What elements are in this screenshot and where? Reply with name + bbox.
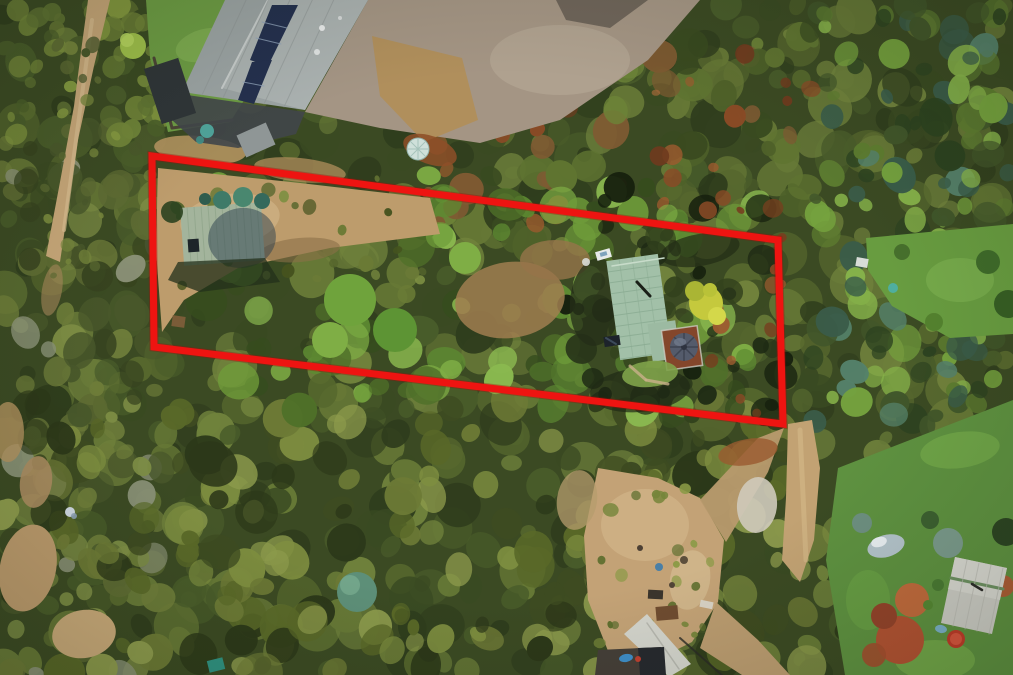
trampoline-red-inner (950, 633, 962, 645)
teal-tree-hl (340, 575, 360, 595)
shed-skylight (188, 239, 200, 253)
water-tank-pleats (408, 139, 428, 159)
lime-bush-topleft-hl (120, 33, 134, 47)
junk-bit-2 (680, 556, 688, 564)
teal-dot-right (888, 283, 898, 293)
junk-blue-barrel (655, 563, 663, 571)
white-object-2 (582, 258, 590, 266)
blue-spruce-2 (852, 513, 872, 533)
autumn-tree-2 (895, 583, 929, 617)
bottom-shed-dark (638, 647, 666, 675)
lawn-tree-3 (925, 313, 943, 331)
deck-umbrella-sheen (674, 338, 686, 346)
teal-umbrella-small (196, 136, 204, 144)
junk-dark (648, 590, 663, 600)
lawn-tree-4 (894, 244, 910, 260)
junk-shed-brown (655, 605, 678, 621)
lawn-tree-1 (976, 250, 1000, 274)
yellow-bush-3 (708, 307, 726, 325)
roof-vent-3 (338, 16, 342, 20)
dark-tree-right-2 (921, 511, 939, 529)
aerial-photo-canvas (0, 0, 1013, 675)
gravel-highlight (490, 25, 630, 95)
shed-bush-2 (233, 187, 253, 207)
roof-vent-2 (314, 49, 320, 55)
white-tarp-shade (71, 513, 77, 519)
autumn-tree-3 (871, 603, 897, 629)
red-item (635, 656, 641, 662)
roof-vent-1 (319, 25, 325, 31)
shed-bush-1 (213, 191, 231, 209)
yellow-bush-4 (703, 283, 717, 297)
junk-bit-1 (669, 582, 675, 588)
bright-canopy-4 (449, 242, 481, 274)
bright-canopy-2 (373, 308, 417, 352)
bright-canopy-1 (324, 274, 376, 326)
shed-bush-3 (254, 193, 270, 209)
cottage-bush-1 (932, 579, 944, 591)
junk-bit-3 (637, 545, 643, 551)
aerial-photo (0, 0, 1013, 675)
teal-umbrella (200, 124, 214, 138)
small-box (171, 315, 185, 328)
autumn-tree-4 (862, 643, 886, 667)
bright-canopy-3 (312, 322, 348, 358)
cottage-bush-2 (923, 600, 933, 610)
dark-tree-left-of-shed (161, 201, 183, 223)
blue-spruce-1 (933, 528, 963, 558)
yellow-bush-2 (685, 281, 705, 301)
shed-bush-4 (199, 193, 211, 205)
